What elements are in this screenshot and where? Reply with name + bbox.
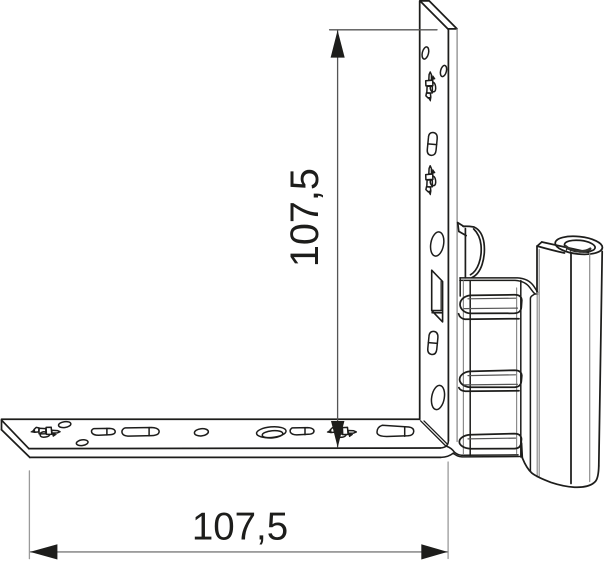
svg-text:107,5: 107,5 — [283, 168, 327, 267]
svg-text:107,5: 107,5 — [192, 506, 288, 549]
